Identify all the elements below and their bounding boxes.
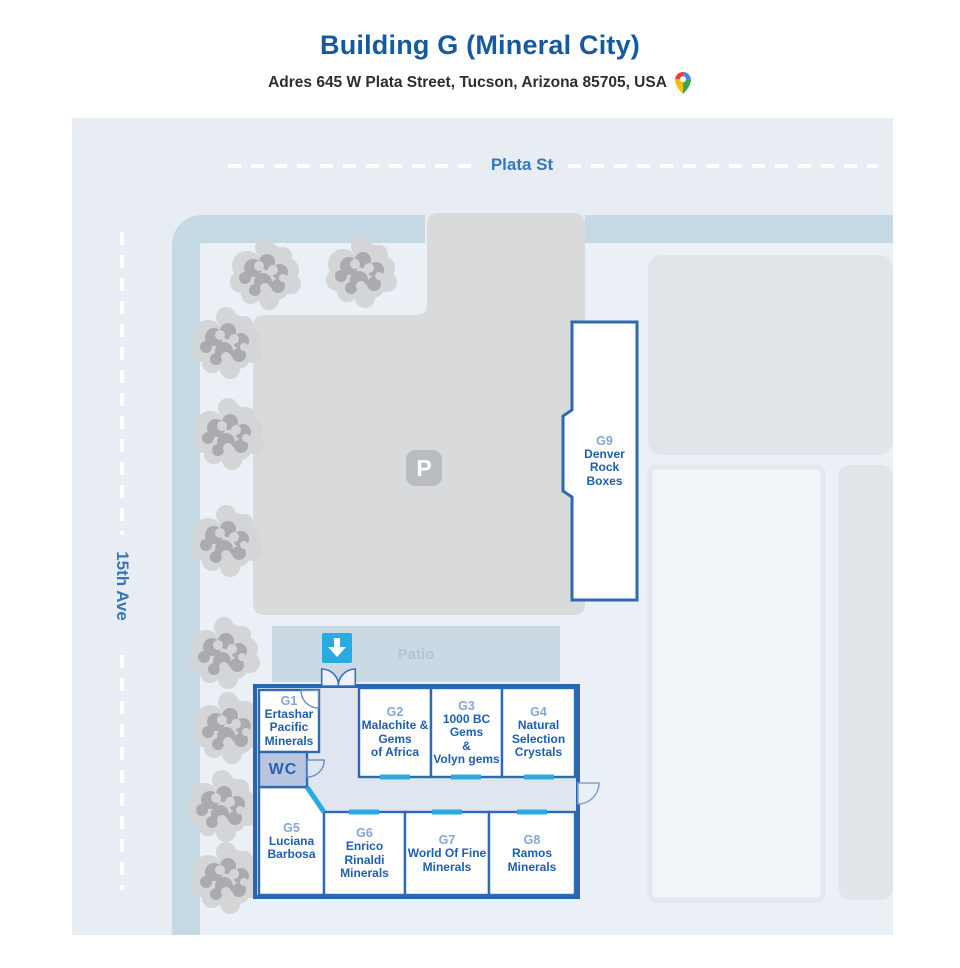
booth-number: G8 (524, 833, 541, 847)
booth-number: G3 (458, 699, 475, 713)
booth-number: G4 (530, 705, 547, 719)
booth-g2[interactable]: G2 Malachite & Gems of Africa (359, 688, 431, 777)
booth-g9[interactable]: G9 Denver Rock Boxes (572, 322, 637, 600)
neighbor-strip-right (838, 465, 893, 900)
wc-room-label: WC (259, 752, 307, 787)
booth-g1[interactable]: G1 Ertashar Pacific Minerals (259, 690, 319, 752)
booth-name: 1000 BC Gems & Volyn gems (433, 713, 499, 767)
booth-number: G2 (387, 705, 404, 719)
booth-name: Ertashar Pacific Minerals (265, 708, 314, 748)
address-text: Adres 645 W Plata Street, Tucson, Arizon… (268, 74, 667, 92)
booth-g8[interactable]: G8 Ramos Minerals (489, 812, 575, 895)
booth-name: Denver Rock Boxes (584, 448, 625, 488)
site-map: Plata St 15th Ave Patio P WC G1 Ertashar… (72, 118, 893, 935)
booth-number: G9 (596, 434, 613, 448)
booth-g4[interactable]: G4 Natural Selection Crystals (502, 688, 575, 777)
booth-g3[interactable]: G3 1000 BC Gems & Volyn gems (431, 688, 502, 777)
booth-name: Natural Selection Crystals (512, 719, 565, 759)
booth-number: G1 (281, 694, 298, 708)
entrance-arrow-icon (322, 633, 352, 663)
booth-name: Enrico Rinaldi Minerals (340, 840, 389, 880)
booth-number: G7 (439, 833, 456, 847)
booth-name: World Of Fine Minerals (408, 847, 486, 874)
booth-g5[interactable]: G5 Luciana Barbosa (259, 787, 324, 895)
booth-name: Ramos Minerals (508, 847, 557, 874)
booth-name: Luciana Barbosa (267, 835, 315, 862)
booth-number: G5 (283, 821, 300, 835)
booth-g7[interactable]: G7 World Of Fine Minerals (405, 812, 489, 895)
neighbor-block-bottom (650, 467, 823, 900)
booth-number: G6 (356, 826, 373, 840)
neighbor-block-top (648, 255, 893, 455)
booth-name: Malachite & Gems of Africa (362, 719, 429, 759)
address-row: Adres 645 W Plata Street, Tucson, Arizon… (0, 72, 960, 94)
parking-p-label: P (406, 450, 442, 486)
booth-g6[interactable]: G6 Enrico Rinaldi Minerals (324, 812, 405, 895)
page-title: Building G (Mineral City) (0, 30, 960, 61)
map-pin-icon[interactable] (674, 72, 692, 94)
patio-area (272, 626, 560, 682)
